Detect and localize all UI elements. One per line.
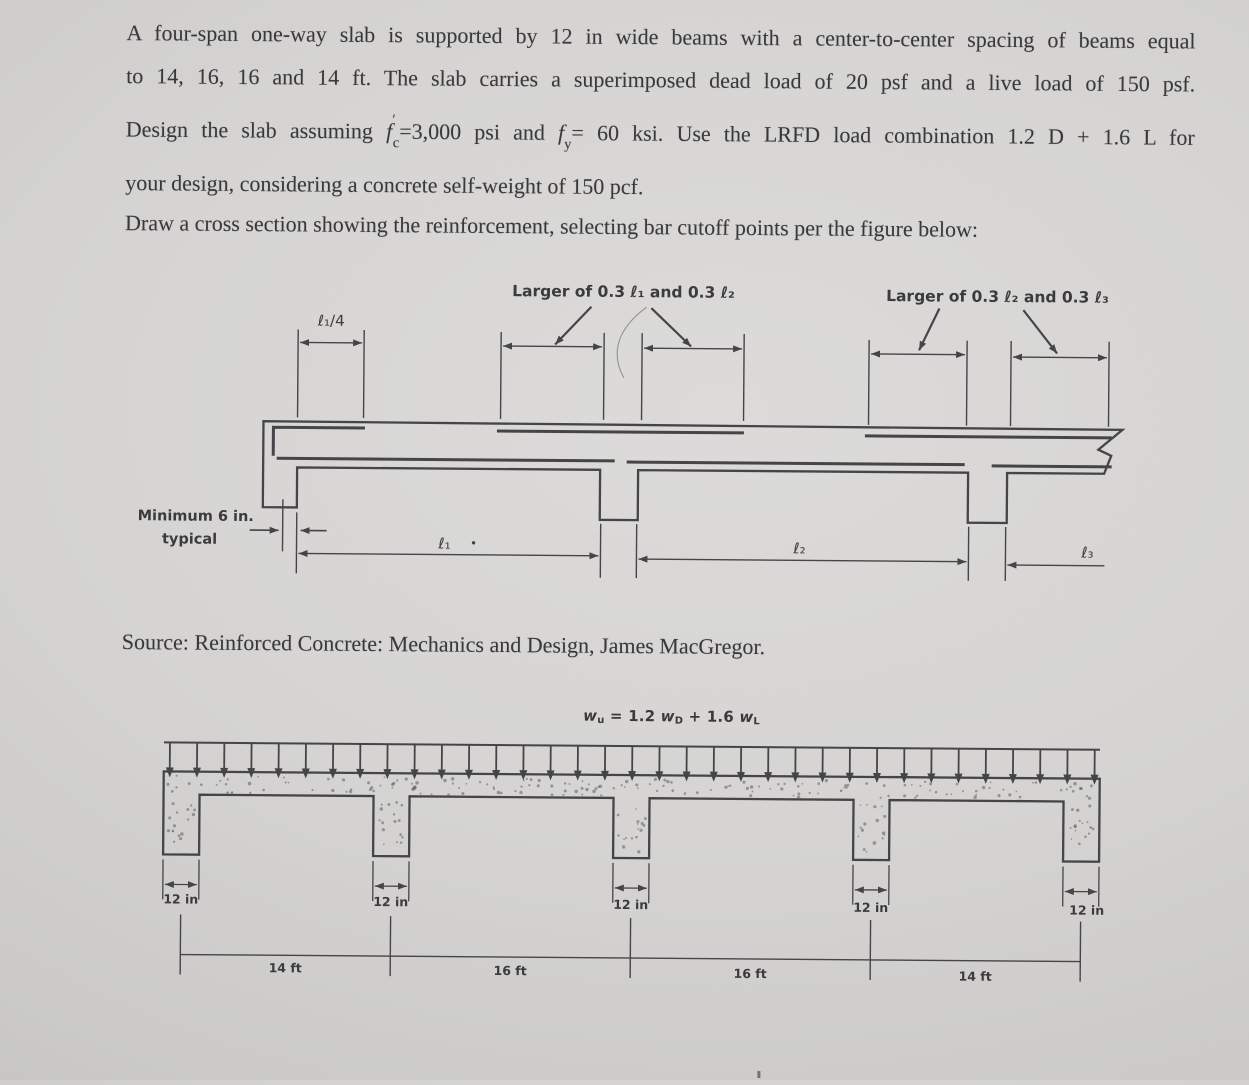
- beam-width-label: 12 in: [853, 900, 888, 915]
- concrete-stipple-texture: [166, 774, 1095, 857]
- bottom-bar-span2: [628, 462, 963, 465]
- leader-arrow-icon: [555, 305, 1058, 381]
- beam-width-label: 12 in: [613, 897, 648, 912]
- document-sheet: A four-span one-way slab is supported by…: [0, 0, 1249, 1085]
- bottom-bar-span3: [993, 466, 1110, 467]
- photo-artifact-speck: [757, 1071, 760, 1078]
- span-dimension-lines: [282, 499, 1105, 581]
- quarter-span-dim-label: ℓ₁/4: [317, 312, 345, 330]
- span3-length-label: ℓ₃: [1080, 544, 1093, 562]
- span-length-label: 16 ft: [494, 963, 527, 978]
- beam-width-label: 12 in: [373, 894, 408, 909]
- statement-line-3: Design the slab assuming f′c=3,000 psi a…: [126, 97, 1195, 171]
- slab-cross-section-outline: [163, 771, 1100, 861]
- statement-line-4: your design, considering a concrete self…: [125, 163, 1194, 214]
- span-length-label: 14 ft: [269, 960, 302, 975]
- photographed-document-page: { "doc": { "paragraph1_lines": [ [{"t":"…: [0, 0, 1249, 1080]
- cutoff-label-left: Larger of 0.3 ℓ₁ and 0.3 ℓ₂: [512, 282, 735, 302]
- span-length-label: 16 ft: [734, 966, 767, 981]
- source-citation: Source: Reinforced Concrete: Mechanics a…: [122, 629, 765, 660]
- six-inch-arrows-icon: [250, 530, 327, 531]
- span1-length-label: ℓ₁: [437, 535, 450, 553]
- hooked-top-bar: [273, 427, 363, 455]
- cutoff-label-right: Larger of 0.3 ℓ₂ and 0.3 ℓ₃: [886, 287, 1109, 307]
- span-length-label: 14 ft: [959, 969, 992, 984]
- min-embedment-note-line1: Minimum 6 in.: [138, 508, 254, 525]
- top-bar-support1: [498, 431, 742, 433]
- top-dimension-lines: ℓ₁/4: [298, 311, 1110, 426]
- instruction-paragraph: Draw a cross section showing the reinfor…: [125, 208, 978, 245]
- stray-dot: [472, 541, 475, 544]
- bar-cutoff-figure: Larger of 0.3 ℓ₁ and 0.3 ℓ₂ Larger of 0.…: [0, 265, 1249, 610]
- problem-statement: A four-span one-way slab is supported by…: [125, 12, 1195, 213]
- min-embedment-note-line2: typical: [162, 531, 217, 547]
- load-diagram-figure: 12 in 12 in 12 in 12 in 12 in 14 ft 16 f…: [0, 695, 1247, 1005]
- top-bar-support2: [866, 436, 1110, 438]
- beam-width-label: 12 in: [163, 891, 198, 906]
- center-spacing-dimensions: [180, 915, 1080, 982]
- bottom-bar-span1: [278, 458, 613, 461]
- span2-length-label: ℓ₂: [792, 539, 805, 557]
- reinforcement-bars: [273, 427, 1110, 467]
- beam-width-label: 12 in: [1069, 903, 1104, 918]
